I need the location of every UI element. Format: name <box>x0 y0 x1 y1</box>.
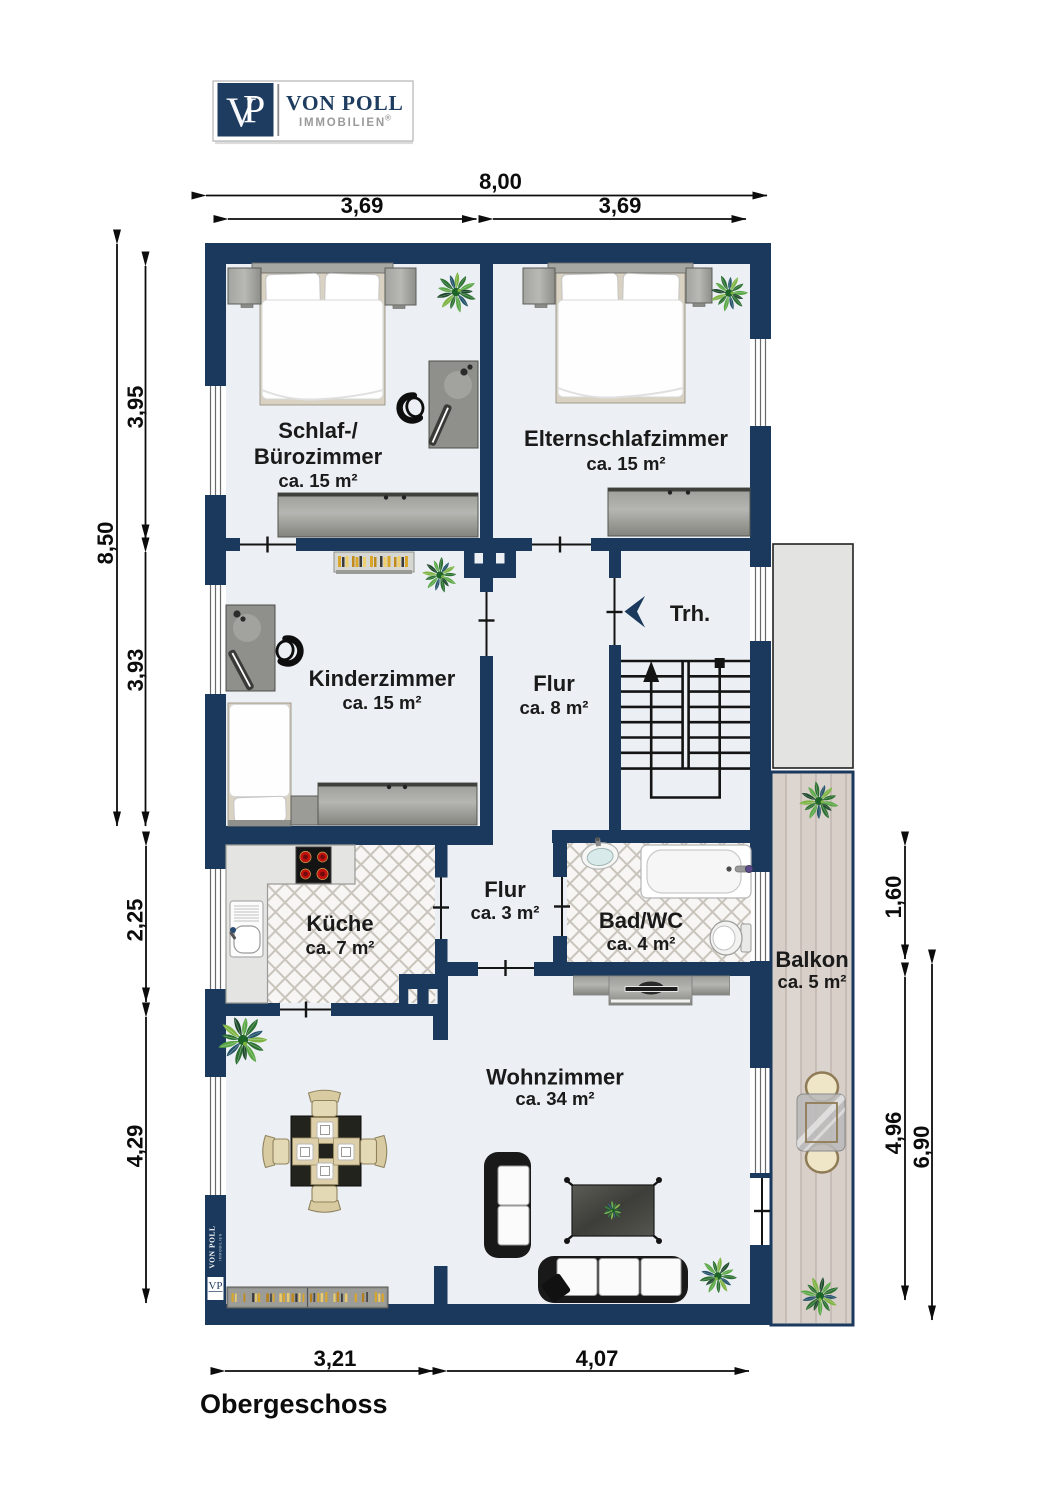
svg-text:P: P <box>243 87 265 132</box>
svg-text:ca. 15 m²: ca. 15 m² <box>586 453 665 474</box>
svg-text:Kinderzimmer: Kinderzimmer <box>309 666 456 691</box>
svg-text:Bürozimmer: Bürozimmer <box>254 444 383 469</box>
svg-text:ca. 34 m²: ca. 34 m² <box>515 1088 594 1109</box>
svg-text:ca. 8 m²: ca. 8 m² <box>520 697 589 718</box>
svg-text:®: ® <box>385 114 391 123</box>
svg-text:ca. 4 m²: ca. 4 m² <box>607 933 676 954</box>
svg-text:VON POLL: VON POLL <box>208 1225 217 1268</box>
svg-text:6,90: 6,90 <box>909 1126 934 1169</box>
svg-text:VON POLL: VON POLL <box>286 91 404 115</box>
svg-text:IMMOBILIEN: IMMOBILIEN <box>219 1233 223 1261</box>
svg-text:ca. 5 m²: ca. 5 m² <box>778 971 847 992</box>
svg-text:Obergeschoss: Obergeschoss <box>200 1389 388 1419</box>
svg-text:Schlaf-/: Schlaf-/ <box>278 418 357 443</box>
svg-text:1,60: 1,60 <box>881 876 906 919</box>
svg-text:ca. 7 m²: ca. 7 m² <box>306 937 375 958</box>
svg-text:ca. 15 m²: ca. 15 m² <box>278 470 357 491</box>
svg-text:Küche: Küche <box>306 911 373 936</box>
svg-text:8,00: 8,00 <box>479 169 522 194</box>
svg-text:ca. 15 m²: ca. 15 m² <box>342 692 421 713</box>
svg-text:3,69: 3,69 <box>599 193 642 218</box>
svg-text:2,25: 2,25 <box>123 899 148 942</box>
svg-text:Trh.: Trh. <box>670 601 710 626</box>
svg-text:Flur: Flur <box>533 671 575 696</box>
svg-text:4,96: 4,96 <box>881 1112 906 1155</box>
svg-text:Wohnzimmer: Wohnzimmer <box>486 1065 624 1090</box>
svg-text:Elternschlafzimmer: Elternschlafzimmer <box>524 426 728 451</box>
svg-text:3,69: 3,69 <box>341 193 384 218</box>
svg-text:Flur: Flur <box>484 877 526 902</box>
svg-text:ca. 3 m²: ca. 3 m² <box>471 902 540 923</box>
svg-text:Bad/WC: Bad/WC <box>599 908 683 933</box>
svg-text:4,07: 4,07 <box>576 1346 619 1371</box>
svg-text:4,29: 4,29 <box>123 1125 148 1168</box>
svg-text:VP: VP <box>208 1280 222 1292</box>
svg-text:IMMOBILIEN: IMMOBILIEN <box>299 117 386 129</box>
svg-text:3,21: 3,21 <box>314 1346 357 1371</box>
svg-text:3,95: 3,95 <box>123 386 148 429</box>
svg-text:8,50: 8,50 <box>93 522 118 565</box>
svg-text:Balkon: Balkon <box>775 947 848 972</box>
svg-text:3,93: 3,93 <box>123 649 148 692</box>
